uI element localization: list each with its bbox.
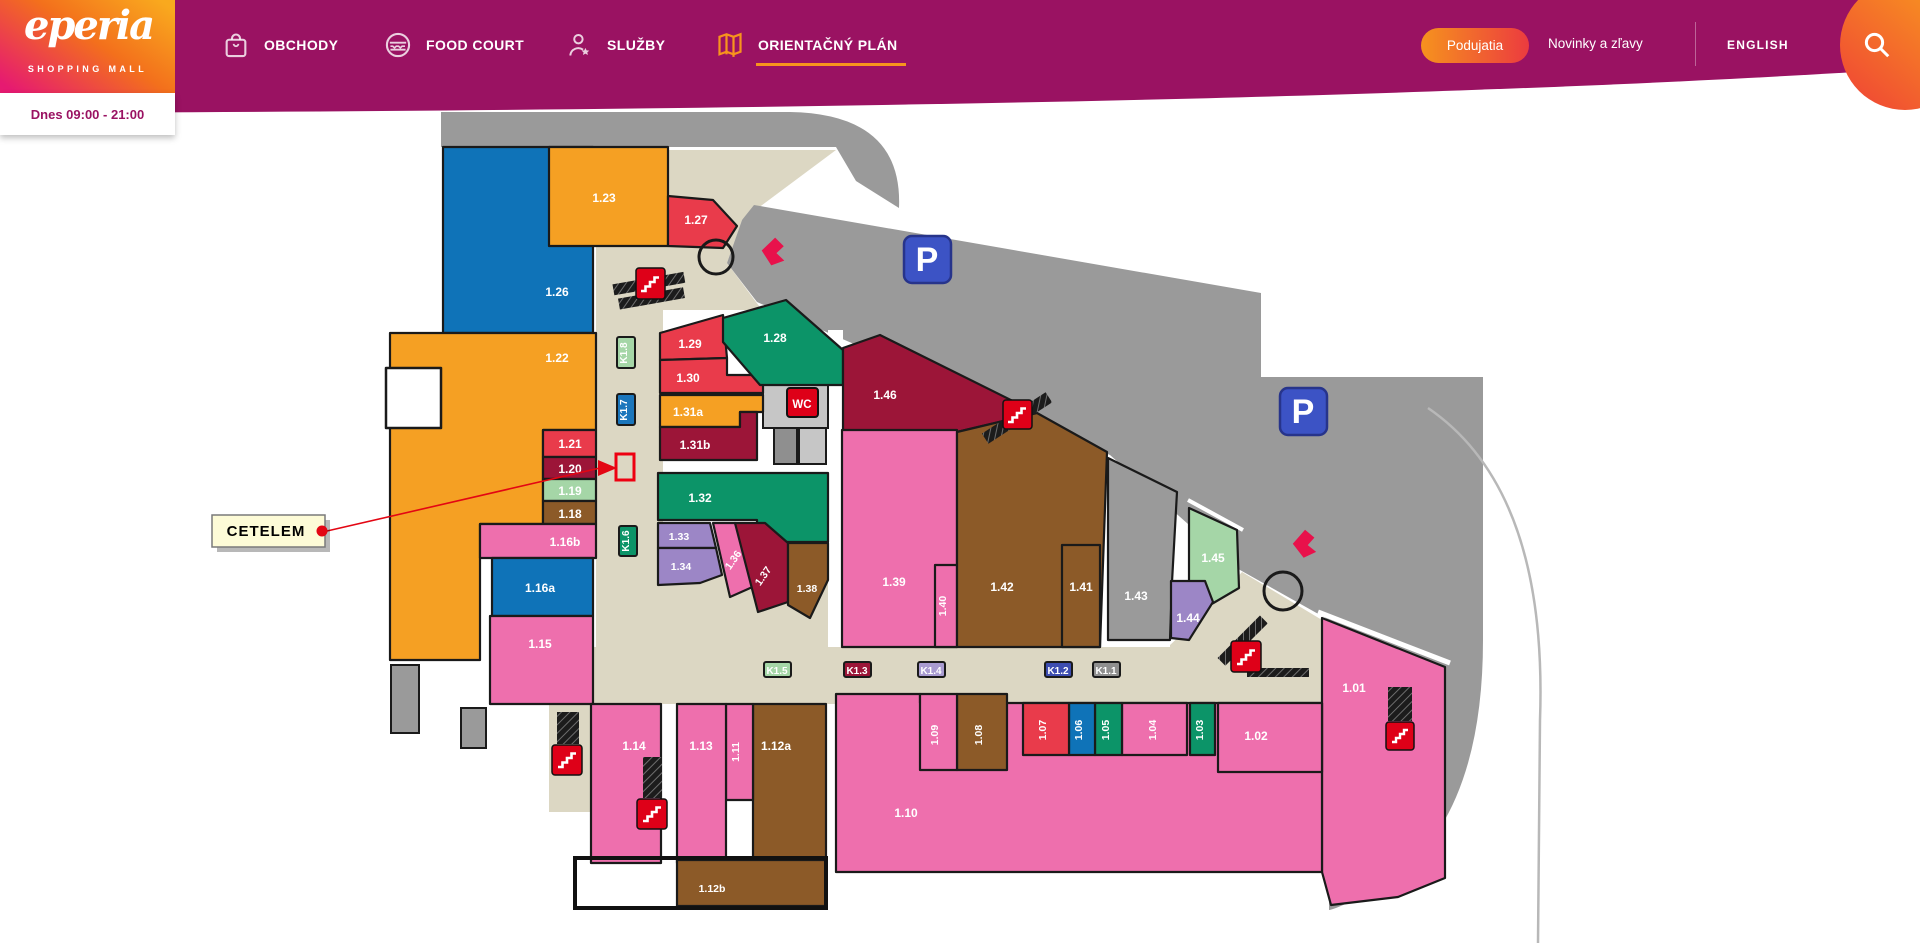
logo-wordmark: eperia — [6, 2, 171, 49]
corridor-K1.5[interactable]: K1.5 — [764, 662, 791, 677]
nav-label: ORIENTAČNÝ PLÁN — [758, 37, 898, 53]
svg-text:1.13: 1.13 — [689, 739, 713, 753]
svg-text:K1.1: K1.1 — [1095, 666, 1117, 677]
svg-text:1.11: 1.11 — [730, 742, 742, 762]
svg-text:1.23: 1.23 — [592, 191, 616, 205]
svg-text:1.03: 1.03 — [1194, 720, 1206, 741]
svg-text:1.02: 1.02 — [1244, 729, 1268, 743]
unit-1.41[interactable]: 1.41 — [1062, 545, 1100, 647]
svg-text:1.34: 1.34 — [671, 561, 692, 573]
svg-text:1.38: 1.38 — [797, 583, 818, 595]
svg-text:K1.3: K1.3 — [846, 666, 868, 677]
unit-1.34[interactable]: 1.34 — [658, 548, 722, 585]
podujatia-label: Podujatia — [1447, 38, 1503, 53]
header-divider — [1695, 22, 1696, 66]
svg-text:1.18: 1.18 — [558, 507, 582, 521]
svg-text:1.09: 1.09 — [929, 725, 941, 746]
svg-text:1.10: 1.10 — [894, 806, 918, 820]
podujatia-button[interactable]: Podujatia — [1421, 28, 1529, 63]
svg-text:1.31b: 1.31b — [680, 438, 711, 452]
corridor-K1.4[interactable]: K1.4 — [918, 662, 945, 677]
unit-1.06[interactable]: 1.06 — [1069, 703, 1095, 755]
logo-tagline: SHOPPING MALL — [0, 64, 175, 74]
unit-1.12a[interactable]: 1.12a — [753, 704, 826, 863]
search-icon[interactable] — [1862, 30, 1892, 60]
svg-text:1.43: 1.43 — [1124, 589, 1148, 603]
svg-text:1.26: 1.26 — [545, 285, 569, 299]
svg-text:K1.7: K1.7 — [619, 399, 630, 421]
unit-1.01[interactable]: 1.01 — [1322, 618, 1445, 905]
svg-text:1.19: 1.19 — [558, 484, 582, 498]
svg-text:1.31a: 1.31a — [673, 405, 703, 419]
svg-text:1.07: 1.07 — [1037, 720, 1049, 741]
unit-1.13[interactable]: 1.13 — [677, 704, 726, 863]
page: 1.26 1.23 1.27 1.22 1.21 1.20 1.19 1.18 … — [0, 0, 1920, 943]
floor-plan-map[interactable]: 1.26 1.23 1.27 1.22 1.21 1.20 1.19 1.18 … — [0, 0, 1920, 943]
unit-1.15[interactable]: 1.15 — [490, 616, 593, 704]
corridor-K1.1[interactable]: K1.1 — [1093, 662, 1120, 677]
svg-text:K1.4: K1.4 — [920, 666, 942, 677]
corridor-K1.3[interactable]: K1.3 — [844, 662, 871, 677]
unit-1.12b[interactable]: 1.12b — [677, 860, 826, 906]
svg-text:1.20: 1.20 — [558, 462, 582, 476]
unit-1.40[interactable]: 1.40 — [935, 565, 957, 647]
unit-1.16b[interactable]: 1.16b — [480, 524, 596, 558]
svg-text:1.27: 1.27 — [684, 213, 708, 227]
svg-text:1.45: 1.45 — [1201, 551, 1225, 565]
nav-label: OBCHODY — [264, 37, 338, 53]
svg-text:1.14: 1.14 — [622, 739, 646, 753]
opening-hours-bar: Dnes 09:00 - 21:00 — [0, 93, 175, 135]
svg-text:P: P — [916, 241, 939, 279]
unit-1.21[interactable]: 1.21 — [543, 430, 596, 457]
svg-text:WC: WC — [792, 399, 811, 411]
corridor-K1.6[interactable]: K1.6 — [619, 526, 637, 556]
header: eperia SHOPPING MALL OBCHODY FOOD COURT … — [0, 0, 1920, 140]
map-icon — [716, 31, 744, 59]
svg-text:1.21: 1.21 — [558, 437, 582, 451]
unit-1.07[interactable]: 1.07 — [1023, 703, 1069, 755]
nav-label: FOOD COURT — [426, 37, 524, 53]
unit-1.16a[interactable]: 1.16a — [492, 558, 593, 616]
nav-item-food-court[interactable]: FOOD COURT — [384, 0, 524, 90]
svg-text:1.30: 1.30 — [676, 371, 700, 385]
svg-text:1.33: 1.33 — [669, 531, 690, 543]
stairs-icon-unit-1.01 — [1386, 687, 1414, 750]
unit-1.23[interactable]: 1.23 — [549, 147, 668, 246]
unit-1.33[interactable]: 1.33 — [658, 523, 716, 548]
unit-1.19[interactable]: 1.19 — [543, 479, 596, 501]
svg-text:K1.6: K1.6 — [621, 530, 632, 552]
wc-sign: WC — [787, 388, 818, 417]
unit-1.03[interactable]: 1.03 — [1190, 703, 1215, 755]
language-switcher[interactable]: ENGLISH — [1727, 38, 1789, 52]
opening-hours-text: Dnes 09:00 - 21:00 — [31, 107, 144, 122]
svg-text:1.06: 1.06 — [1073, 720, 1085, 741]
svg-text:1.22: 1.22 — [545, 351, 569, 365]
svg-text:1.40: 1.40 — [937, 596, 949, 617]
tooltip-anchor-dot — [317, 526, 328, 537]
corridor-K1.8[interactable]: K1.8 — [617, 337, 635, 368]
unit-1.04[interactable]: 1.04 — [1122, 703, 1187, 755]
svg-text:1.28: 1.28 — [763, 331, 787, 345]
svg-text:1.16b: 1.16b — [550, 535, 581, 549]
unit-1.02[interactable]: 1.02 — [1218, 703, 1322, 772]
nav-item-orientacny-plan[interactable]: ORIENTAČNÝ PLÁN — [716, 0, 898, 90]
unit-1.18[interactable]: 1.18 — [543, 501, 596, 524]
svg-text:1.04: 1.04 — [1147, 720, 1159, 741]
svg-text:1.41: 1.41 — [1069, 580, 1093, 594]
shopping-bag-icon — [222, 31, 250, 59]
svg-text:1.12a: 1.12a — [761, 739, 791, 753]
svg-text:1.08: 1.08 — [973, 725, 985, 746]
novinky-link[interactable]: Novinky a zľavy — [1548, 36, 1643, 51]
svg-text:K1.5: K1.5 — [766, 666, 788, 677]
svg-text:1.01: 1.01 — [1342, 681, 1366, 695]
services-person-icon — [565, 31, 593, 59]
logo[interactable]: eperia SHOPPING MALL — [0, 0, 175, 93]
unit-1.11[interactable]: 1.11 — [726, 704, 753, 800]
svg-text:1.15: 1.15 — [528, 637, 552, 651]
nav-item-obchody[interactable]: OBCHODY — [222, 0, 338, 90]
active-nav-underline — [756, 63, 906, 66]
highlighted-unit-marker[interactable] — [616, 454, 634, 480]
tooltip-label: CETELEM — [227, 523, 306, 540]
svg-text:K1.8: K1.8 — [619, 342, 630, 364]
svg-text:1.12b: 1.12b — [699, 883, 726, 895]
svg-text:K1.2: K1.2 — [1047, 666, 1069, 677]
corridor-K1.7[interactable]: K1.7 — [617, 394, 635, 425]
unit-1.08[interactable]: 1.08 — [957, 694, 1007, 770]
unit-1.05[interactable]: 1.05 — [1095, 703, 1122, 755]
svg-text:1.32: 1.32 — [688, 491, 712, 505]
nav-label: SLUŽBY — [607, 37, 665, 53]
svg-text:1.39: 1.39 — [882, 575, 906, 589]
svg-text:1.29: 1.29 — [678, 337, 702, 351]
svg-text:1.42: 1.42 — [990, 580, 1014, 594]
unit-1.09[interactable]: 1.09 — [920, 694, 957, 770]
svg-text:1.16a: 1.16a — [525, 581, 555, 595]
burger-icon — [384, 31, 412, 59]
svg-text:1.46: 1.46 — [873, 388, 897, 402]
parking-sign-right: P — [1280, 388, 1327, 435]
svg-text:P: P — [1292, 393, 1315, 431]
svg-text:1.44: 1.44 — [1176, 611, 1200, 625]
svg-text:1.05: 1.05 — [1100, 720, 1112, 741]
nav-item-sluzby[interactable]: SLUŽBY — [565, 0, 665, 90]
parking-sign-top: P — [904, 236, 951, 283]
corridor-K1.2[interactable]: K1.2 — [1045, 662, 1072, 677]
unit-1.29[interactable]: 1.29 — [660, 315, 727, 360]
